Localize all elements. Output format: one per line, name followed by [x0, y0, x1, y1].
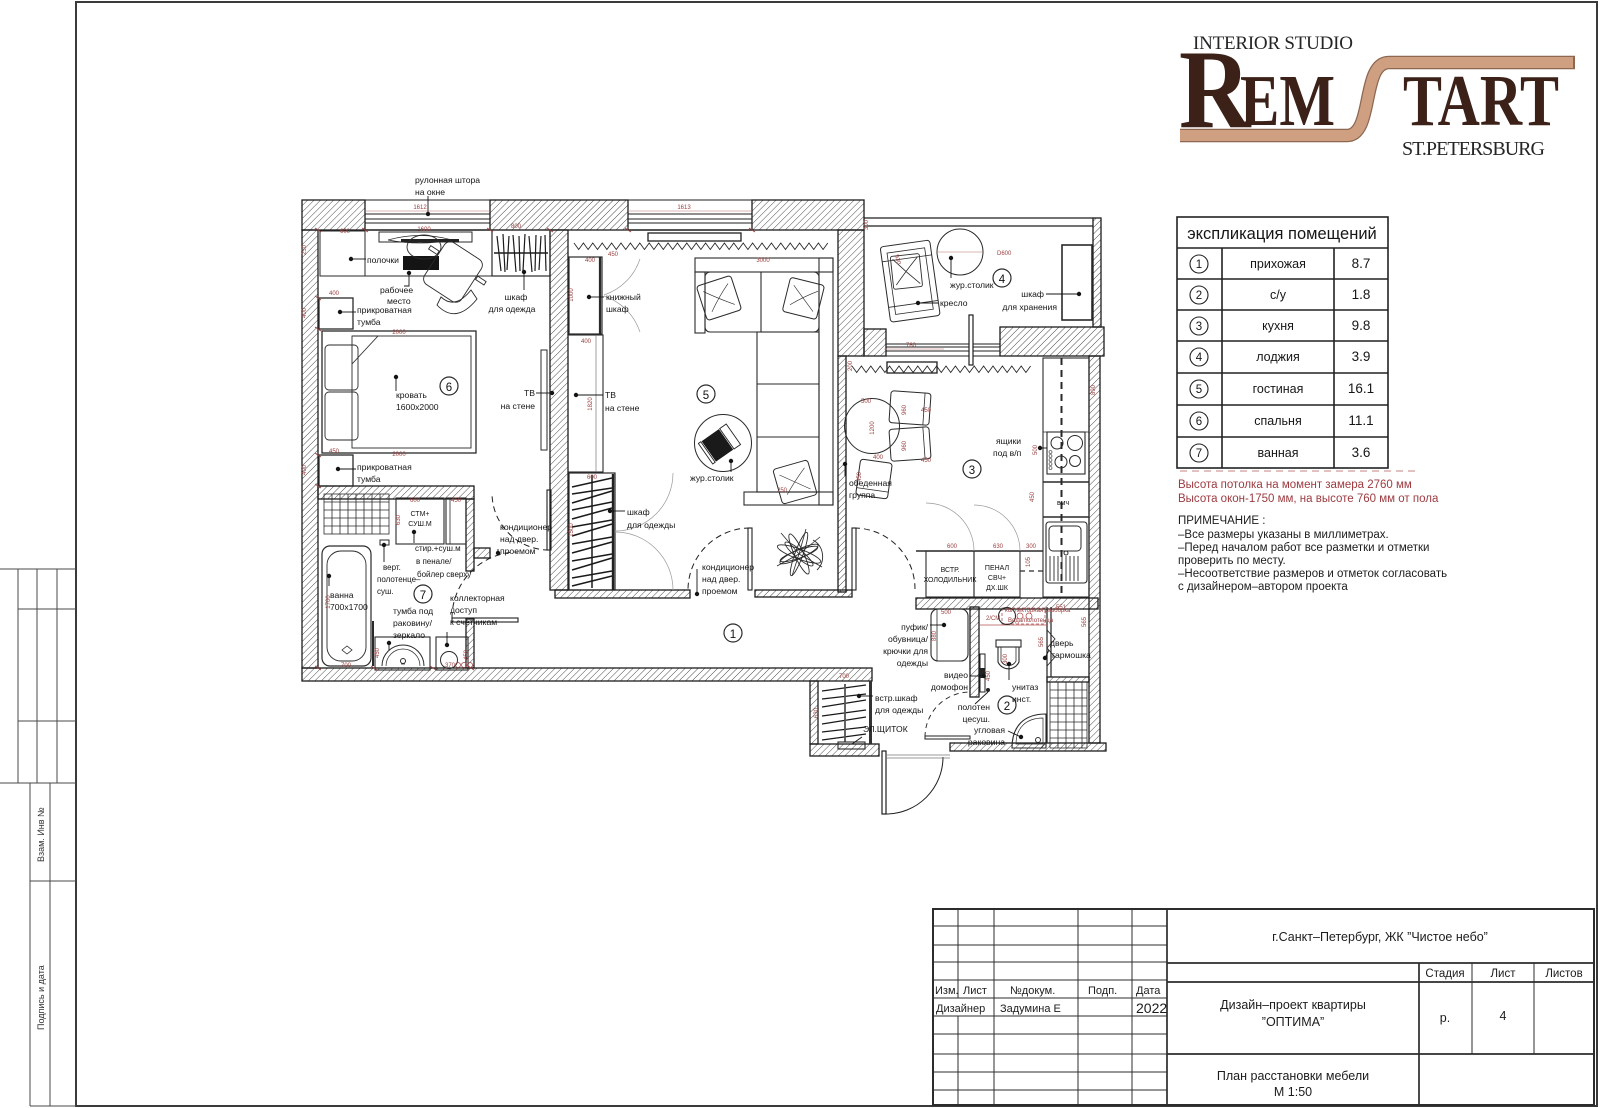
svg-text:1500: 1500	[569, 523, 575, 537]
svg-text:450: 450	[857, 471, 863, 482]
svg-text:–Перед началом работ все разме: –Перед началом работ все разметки и отме…	[1178, 542, 1429, 554]
svg-text:Подп.: Подп.	[1088, 985, 1117, 997]
svg-text:дверь: дверь	[1050, 638, 1074, 648]
svg-text:доступ: доступ	[450, 605, 477, 615]
svg-text:СВЧ+: СВЧ+	[988, 575, 1006, 582]
svg-text:тумба: тумба	[357, 317, 381, 327]
svg-text:кровать: кровать	[396, 390, 427, 400]
svg-text:жур.столик: жур.столик	[690, 473, 734, 483]
svg-text:шкаф: шкаф	[1021, 289, 1044, 299]
svg-text:ХОЛОДИЛЬНИК: ХОЛОДИЛЬНИК	[924, 577, 978, 584]
svg-text:5: 5	[703, 390, 709, 402]
svg-text:СУШ.М: СУШ.М	[408, 521, 432, 528]
svg-text:200: 200	[848, 360, 854, 371]
svg-text:1600х2000: 1600х2000	[396, 402, 439, 412]
svg-text:домофон: домофон	[931, 682, 968, 692]
svg-text:верт.: верт.	[383, 563, 401, 572]
svg-text:4: 4	[1196, 352, 1203, 364]
svg-text:кухня: кухня	[1262, 319, 1294, 333]
svg-text:6: 6	[446, 382, 452, 394]
svg-text:890: 890	[1091, 384, 1097, 395]
svg-text:ТВ: ТВ	[605, 390, 616, 400]
svg-text:450: 450	[986, 670, 992, 681]
svg-text:встр.шкаф: встр.шкаф	[875, 693, 918, 703]
svg-text:Изм.: Изм.	[935, 985, 959, 997]
svg-text:700: 700	[839, 674, 850, 680]
svg-text:М 1:50: М 1:50	[1274, 1085, 1312, 1099]
svg-text:цесуш.: цесуш.	[963, 714, 990, 724]
svg-text:1820: 1820	[588, 397, 594, 411]
svg-text:3.9: 3.9	[1352, 349, 1371, 364]
svg-text:4: 4	[999, 274, 1006, 286]
svg-text:Лист: Лист	[963, 985, 987, 997]
svg-text:600: 600	[410, 498, 421, 504]
svg-text:400: 400	[585, 258, 596, 264]
svg-text:960: 960	[902, 404, 908, 415]
svg-text:1612: 1612	[413, 205, 427, 211]
svg-text:450: 450	[921, 458, 932, 464]
svg-text:гармошка: гармошка	[1052, 650, 1091, 660]
svg-text:под в/п: под в/п	[993, 448, 1022, 458]
svg-text:300: 300	[1003, 653, 1009, 664]
svg-text:250: 250	[302, 244, 308, 255]
svg-text:к счетчикам: к счетчикам	[450, 617, 497, 627]
svg-text:тумба под: тумба под	[393, 606, 433, 616]
svg-text:ЭЛ.ЩИТОК: ЭЛ.ЩИТОК	[863, 724, 908, 734]
svg-text:400: 400	[329, 291, 340, 297]
svg-text:пуфик/: пуфик/	[901, 622, 928, 632]
svg-text:на окне: на окне	[415, 187, 445, 197]
svg-text:проемом: проемом	[702, 586, 738, 596]
svg-text:Задумина Е: Задумина Е	[1000, 1003, 1061, 1015]
svg-text:Лист: Лист	[1491, 968, 1517, 980]
svg-text:ST.PETERSBURG: ST.PETERSBURG	[1402, 138, 1545, 160]
svg-text:для одежды: для одежды	[627, 520, 675, 530]
svg-text:565: 565	[1082, 616, 1088, 627]
svg-text:на стене: на стене	[501, 401, 536, 411]
svg-text:угловая: угловая	[974, 725, 1005, 735]
svg-text:500: 500	[941, 610, 952, 616]
svg-text:630: 630	[396, 514, 402, 525]
svg-text:с дизайнером–автором проекта: с дизайнером–автором проекта	[1178, 581, 1348, 593]
svg-text:стир.+суш.м: стир.+суш.м	[415, 544, 461, 553]
svg-text:1600: 1600	[417, 227, 431, 233]
svg-text:Дизайнер: Дизайнер	[936, 1003, 985, 1015]
svg-text:Листов: Листов	[1545, 968, 1582, 980]
svg-text:План расстановки мебели: План расстановки мебели	[1217, 1069, 1369, 1083]
svg-text:1: 1	[1196, 259, 1202, 271]
svg-text:565: 565	[1039, 636, 1045, 647]
svg-text:ВСТР.: ВСТР.	[941, 567, 960, 574]
svg-text:400: 400	[302, 307, 308, 318]
svg-text:шкаф: шкаф	[606, 304, 629, 314]
svg-text:для одежды: для одежды	[875, 705, 923, 715]
svg-text:–Все размеры указаны в миллиме: –Все размеры указаны в миллиметрах.	[1178, 529, 1389, 541]
svg-text:1700: 1700	[326, 595, 332, 609]
svg-text:Взам. Инв №: Взам. Инв №	[36, 807, 46, 862]
svg-text:700: 700	[341, 663, 352, 669]
svg-text:600: 600	[947, 544, 958, 550]
svg-text:”ОПТИМА”: ”ОПТИМА”	[1262, 1015, 1324, 1029]
svg-text:ПЕНАЛ: ПЕНАЛ	[985, 565, 1010, 572]
svg-text:гостиная: гостиная	[1253, 382, 1304, 396]
svg-text:зеркало: зеркало	[393, 630, 425, 640]
svg-text:с/у: с/у	[1270, 288, 1287, 302]
svg-text:раковину/: раковину/	[393, 618, 433, 628]
svg-text:видео: видео	[944, 670, 968, 680]
svg-text:2: 2	[1196, 290, 1202, 302]
svg-text:прикроватная: прикроватная	[357, 462, 412, 472]
svg-text:1200: 1200	[870, 421, 876, 435]
svg-text:8.7: 8.7	[1352, 256, 1371, 271]
svg-text:D600: D600	[997, 251, 1012, 257]
svg-text:400: 400	[302, 464, 308, 475]
svg-text:11.1: 11.1	[1348, 413, 1373, 428]
svg-text:880: 880	[932, 630, 938, 641]
svg-text:обувница/: обувница/	[888, 634, 929, 644]
svg-text:450: 450	[921, 408, 932, 414]
svg-text:вмч: вмч	[1057, 500, 1069, 507]
svg-text:над двер.: над двер.	[500, 534, 538, 544]
svg-text:600: 600	[587, 475, 598, 481]
svg-text:кондиционер: кондиционер	[702, 562, 754, 572]
svg-text:450: 450	[375, 647, 381, 658]
svg-text:Вода/полотенца: Вода/полотенца	[1008, 618, 1054, 624]
svg-text:ванна: ванна	[330, 590, 354, 600]
svg-text:экспликация помещений: экспликация помещений	[1187, 225, 1377, 243]
svg-text:500: 500	[861, 399, 872, 405]
svg-text:2: 2	[1004, 701, 1010, 713]
svg-text:Высота окон-1750 мм, на высоте: Высота окон-1750 мм, на высоте 760 мм от…	[1178, 493, 1439, 505]
svg-text:250: 250	[777, 488, 788, 494]
svg-text:630: 630	[993, 544, 1004, 550]
svg-text:спальня: спальня	[1254, 414, 1301, 428]
svg-text:400: 400	[581, 339, 592, 345]
svg-text:500: 500	[1033, 444, 1039, 455]
svg-text:2/СМ: 2/СМ	[986, 616, 1000, 622]
svg-text:в пенале/: в пенале/	[416, 557, 452, 566]
svg-text:3000: 3000	[756, 258, 770, 264]
svg-text:800: 800	[511, 224, 522, 230]
svg-text:450: 450	[329, 449, 340, 455]
svg-text:кресло: кресло	[940, 298, 968, 308]
svg-text:г.Санкт–Петербург, ЖК ”Чистое: г.Санкт–Петербург, ЖК ”Чистое небо”	[1272, 930, 1488, 944]
svg-text:на стене: на стене	[605, 403, 640, 413]
svg-text:для хранения: для хранения	[1002, 302, 1057, 312]
svg-text:полотен: полотен	[958, 702, 991, 712]
svg-text:370: 370	[445, 663, 456, 669]
svg-text:лоджия: лоджия	[1256, 350, 1300, 364]
svg-text:полотенце–: полотенце–	[377, 575, 421, 584]
svg-text:Дизайн–проект квартиры: Дизайн–проект квартиры	[1220, 998, 1366, 1012]
svg-text:для одежда: для одежда	[489, 304, 536, 314]
svg-text:9.8: 9.8	[1352, 318, 1371, 333]
svg-text:1.8: 1.8	[1352, 287, 1371, 302]
svg-text:450: 450	[464, 649, 470, 660]
svg-text:16.1: 16.1	[1348, 381, 1374, 396]
svg-text:ванная: ванная	[1258, 446, 1299, 460]
svg-text:7: 7	[1196, 448, 1202, 460]
svg-text:300: 300	[1026, 544, 1037, 550]
svg-text:кондиционер: кондиционер	[500, 522, 552, 532]
svg-text:инст.: инст.	[1012, 694, 1031, 704]
svg-text:рулонная штора: рулонная штора	[415, 175, 480, 185]
svg-text:р.: р.	[1440, 1011, 1450, 1025]
svg-text:3.6: 3.6	[1352, 445, 1371, 460]
svg-text:Высота потолка на момент замер: Высота потолка на момент замера 2760 мм	[1178, 479, 1412, 491]
svg-text:Подпись и дата: Подпись и дата	[36, 965, 46, 1030]
svg-text:ПРИМЕЧАНИЕ :: ПРИМЕЧАНИЕ :	[1178, 515, 1265, 527]
svg-text:проверить по месту.: проверить по месту.	[1178, 555, 1286, 567]
svg-text:суш.: суш.	[377, 587, 394, 596]
svg-text:2022: 2022	[1136, 1000, 1167, 1016]
svg-text:960: 960	[902, 440, 908, 451]
svg-text:шкаф: шкаф	[627, 507, 650, 517]
svg-text:книжный: книжный	[606, 292, 641, 302]
svg-text:СТМ+: СТМ+	[410, 511, 429, 518]
svg-text:450: 450	[1030, 491, 1036, 502]
svg-text:2000: 2000	[392, 330, 406, 336]
svg-text:полочки: полочки	[367, 255, 399, 265]
svg-text:1: 1	[730, 629, 736, 641]
svg-text:жур.столик: жур.столик	[950, 280, 994, 290]
svg-text:630: 630	[814, 707, 820, 718]
svg-text:прихожая: прихожая	[1250, 257, 1306, 271]
svg-text:рабочее: рабочее	[380, 285, 413, 295]
svg-text:раковина: раковина	[968, 737, 1005, 747]
svg-text:коллекторная: коллекторная	[450, 593, 505, 603]
svg-text:1000: 1000	[569, 288, 575, 302]
svg-text:450: 450	[608, 252, 619, 258]
svg-text:400: 400	[873, 455, 884, 461]
svg-text:TART: TART	[1403, 60, 1559, 141]
svg-text:3: 3	[1196, 321, 1202, 333]
svg-text:700х1700: 700х1700	[330, 602, 368, 612]
svg-text:ДХ.ШК: ДХ.ШК	[986, 585, 1009, 592]
svg-text:группа: группа	[849, 490, 875, 500]
svg-text:ТВ: ТВ	[524, 388, 535, 398]
svg-text:300: 300	[864, 219, 870, 230]
svg-text:шкаф: шкаф	[505, 292, 528, 302]
svg-text:одежды: одежды	[897, 658, 928, 668]
svg-text:3: 3	[969, 465, 975, 477]
svg-text:крючки для: крючки для	[883, 646, 928, 656]
svg-text:EM: EM	[1240, 60, 1335, 141]
svg-text:прикроватная: прикроватная	[357, 305, 412, 315]
svg-text:600: 600	[340, 229, 351, 235]
svg-text:Дата: Дата	[1136, 985, 1161, 997]
svg-text:№докум.: №докум.	[1010, 985, 1055, 997]
svg-text:6: 6	[1196, 416, 1202, 428]
svg-text:Стадия: Стадия	[1425, 968, 1464, 980]
svg-text:5: 5	[1196, 384, 1202, 396]
svg-text:551: 551	[1056, 605, 1067, 611]
svg-text:2000: 2000	[392, 452, 406, 458]
svg-text:бойлер сверху: бойлер сверху	[417, 570, 471, 579]
svg-text:тумба: тумба	[357, 474, 381, 484]
svg-text:450: 450	[451, 498, 462, 504]
svg-text:780: 780	[906, 343, 917, 349]
svg-text:–Несоответствие размеров и отм: –Несоответствие размеров и отметок согла…	[1178, 568, 1447, 580]
svg-text:7: 7	[420, 590, 426, 602]
svg-text:105: 105	[1026, 556, 1032, 567]
svg-text:унитаз: унитаз	[1012, 682, 1038, 692]
svg-text:обеденная: обеденная	[849, 478, 892, 488]
svg-text:4: 4	[1500, 1009, 1507, 1023]
svg-text:проемом: проемом	[500, 546, 536, 556]
svg-text:над двер.: над двер.	[702, 574, 740, 584]
svg-text:ящики: ящики	[996, 436, 1021, 446]
svg-text:1613: 1613	[677, 205, 691, 211]
